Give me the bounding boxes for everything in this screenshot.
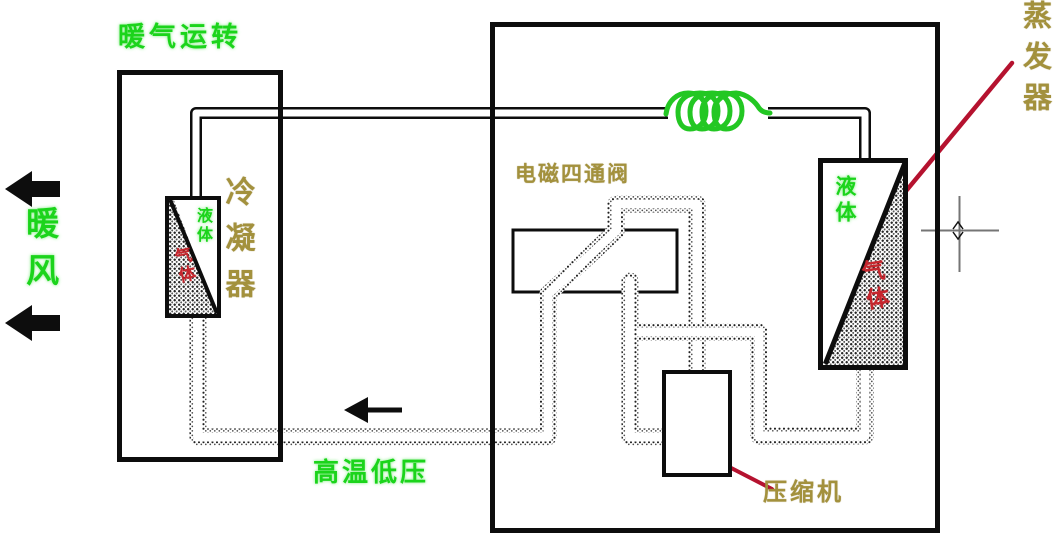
outdoor-unit-box — [490, 22, 940, 533]
warm-air-arrow-icon — [5, 171, 60, 207]
condenser-label: 冷凝器 — [221, 176, 253, 314]
heating-mode-title: 暖气运转 — [118, 24, 242, 52]
evaporator-label: 蒸发器 — [1020, 0, 1050, 123]
warm-air-arrow-icon — [5, 305, 60, 341]
high-temp-low-pressure-label: 高温低压 — [313, 460, 429, 487]
indoor-unit-box — [117, 70, 283, 462]
four-way-valve-label: 电磁四通阀 — [515, 163, 630, 185]
flow-direction-arrow-icon — [344, 397, 402, 423]
compressor-label: 压缩机 — [763, 480, 844, 505]
warm-air-label: 暖风 — [22, 206, 57, 300]
diagram-canvas: 液体 气体 液体 气体 暖气运转 暖风 冷凝器 电磁四通阀 蒸发器 压缩机 高温… — [0, 0, 1060, 549]
